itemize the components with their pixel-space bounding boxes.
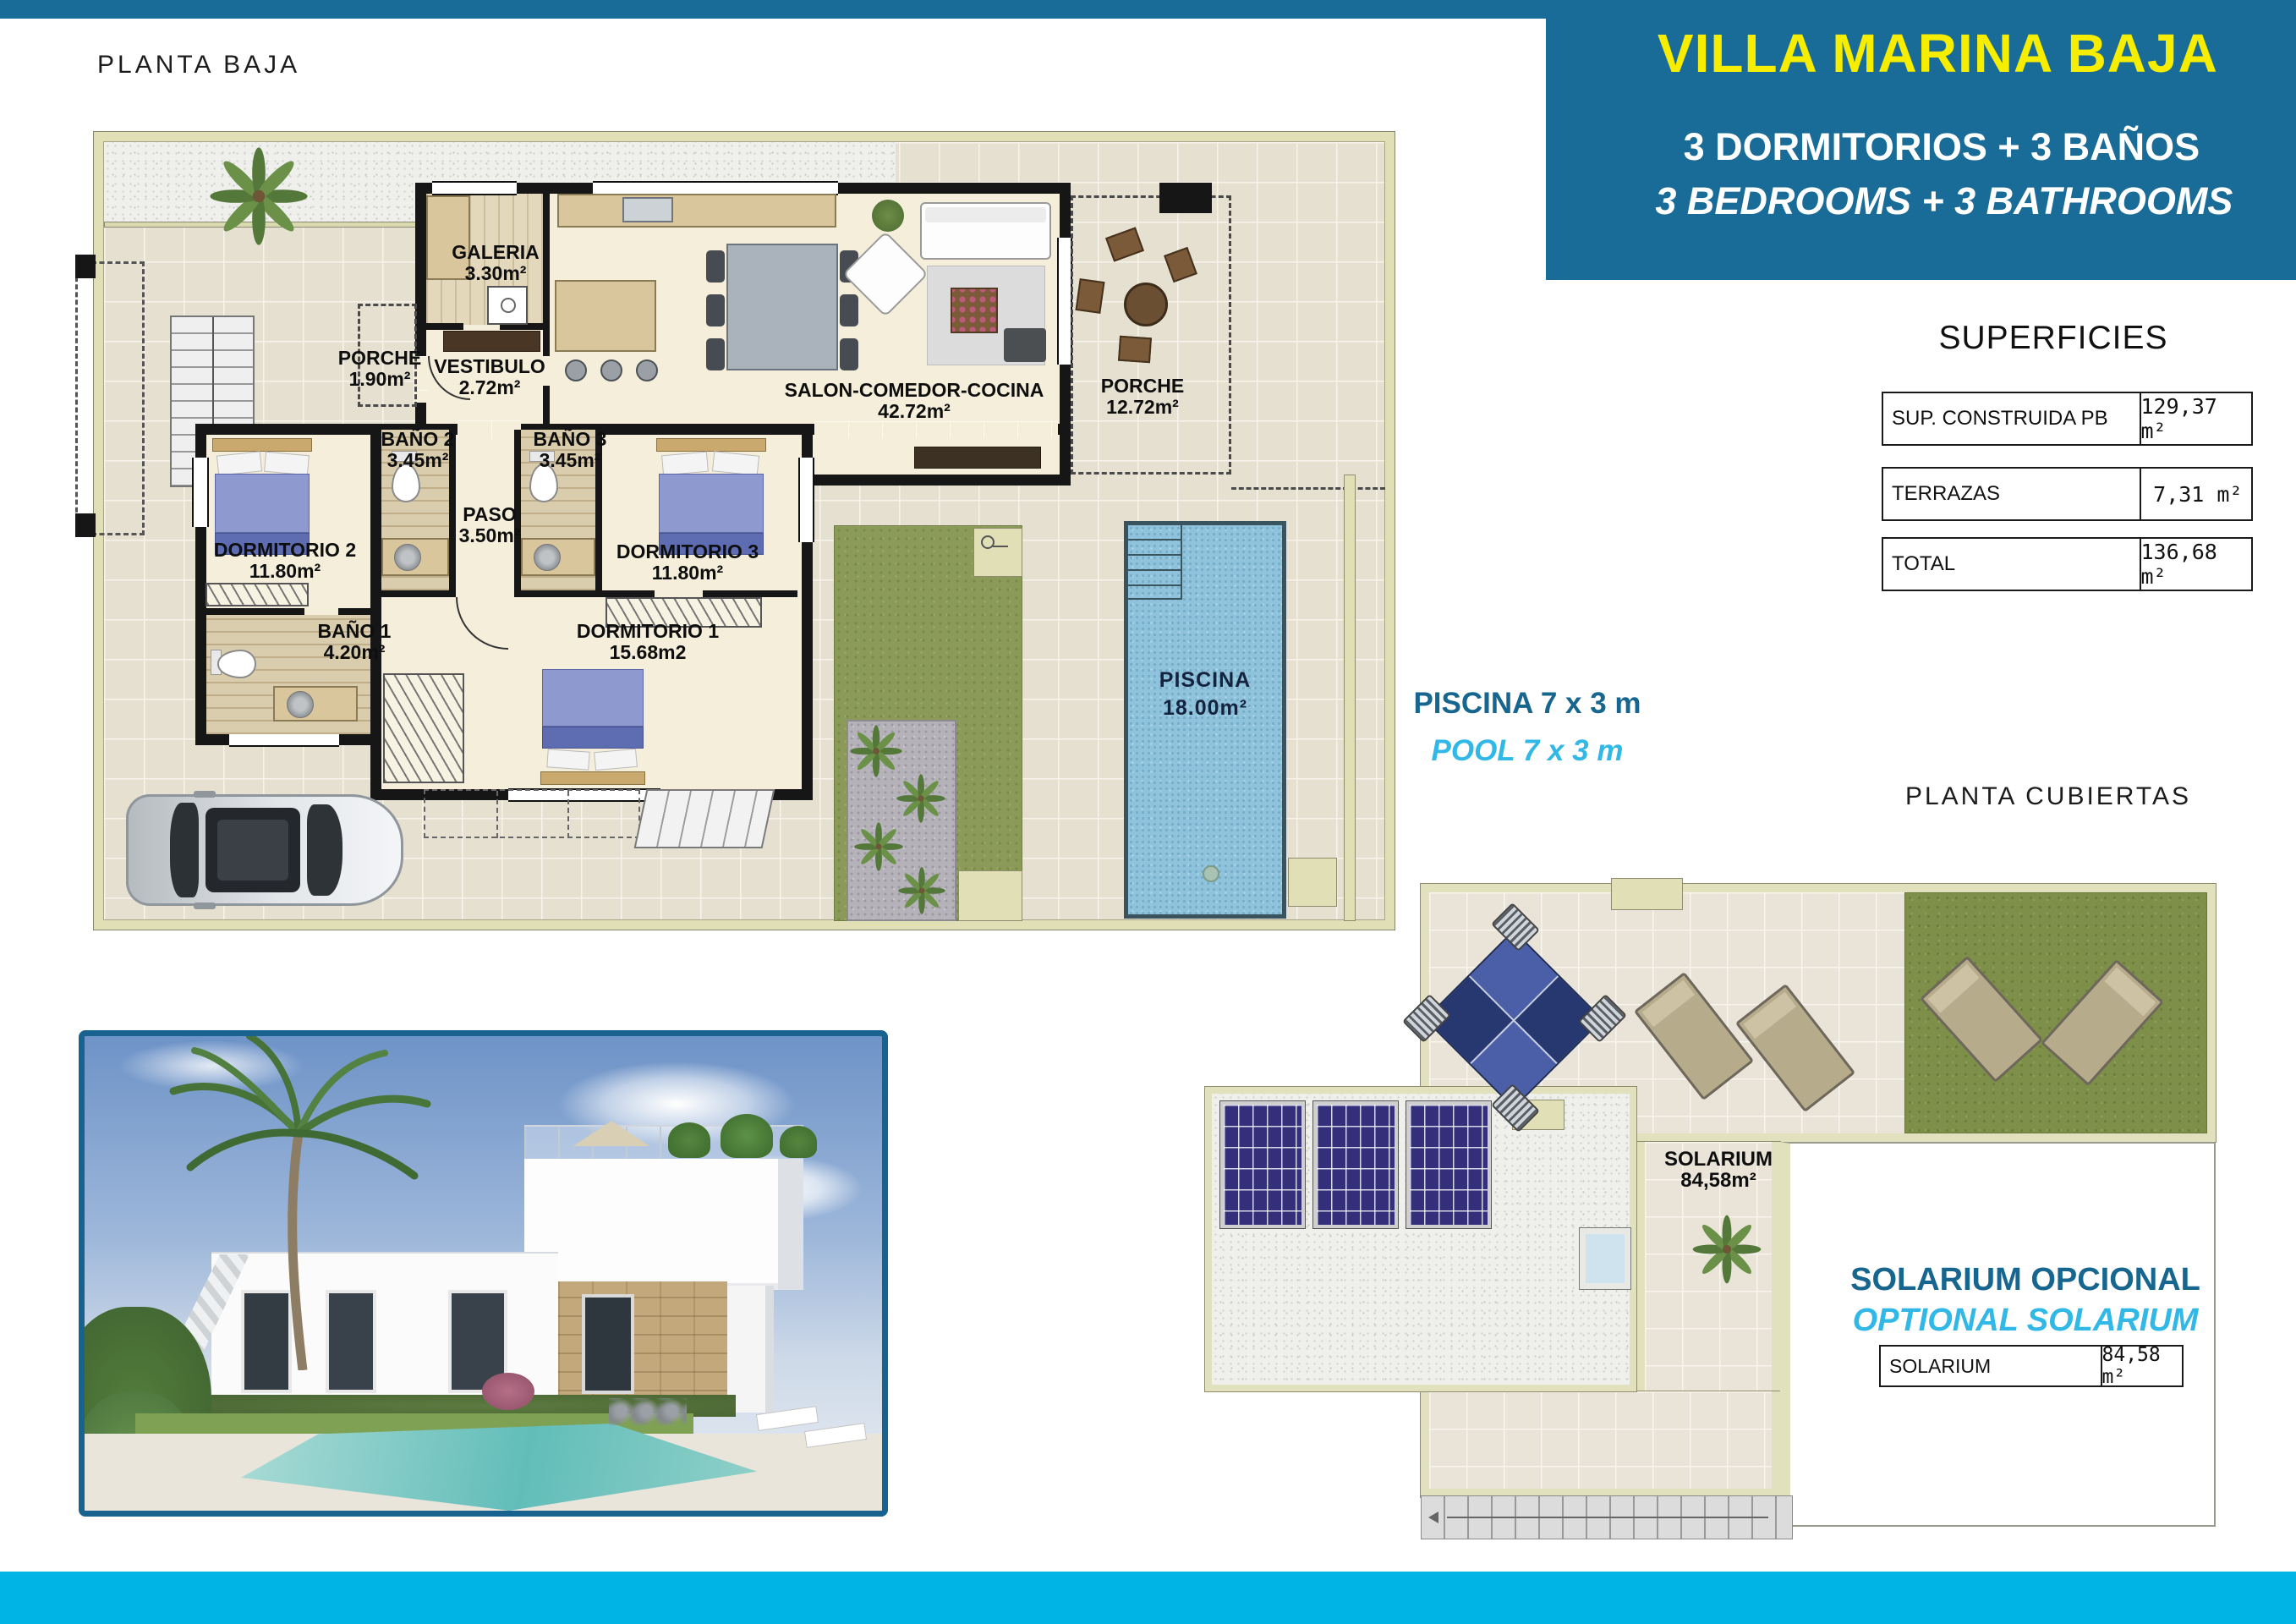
solarium-table-value: 84,58 m² <box>2101 1345 2184 1387</box>
solarium-room-label: SOLARIUM84,58m² <box>1664 1149 1773 1191</box>
superficies-row-value: 7,31 m² <box>2140 467 2253 521</box>
villa-window <box>582 1294 634 1394</box>
palm-icon <box>849 724 903 778</box>
pouf <box>1004 328 1046 362</box>
vanity <box>273 686 358 721</box>
stool <box>636 359 658 381</box>
solar-panel <box>1313 1101 1398 1228</box>
entrance-gate <box>75 261 145 535</box>
villa-photo <box>79 1030 888 1517</box>
water-heater <box>487 286 528 325</box>
solar-panel <box>1406 1101 1491 1228</box>
tv-unit <box>914 447 1041 469</box>
room-label-dormitorio2: DORMITORIO 211.80m² <box>214 540 356 582</box>
upper-volume <box>524 1159 803 1290</box>
carport-outline <box>424 789 640 838</box>
photo-dining-set <box>609 1398 687 1425</box>
garden-pad <box>1288 858 1337 907</box>
bed <box>542 669 644 727</box>
room-label-porche-2: PORCHE12.72m² <box>1101 376 1184 418</box>
window <box>432 181 517 195</box>
header-subtitle-en: 3 BEDROOMS + 3 BATHROOMS <box>1655 179 2233 223</box>
solarium-note-es: SOLARIUM OPCIONAL <box>1850 1262 2200 1298</box>
solarium-note-en: OPTIONAL SOLARIUM <box>1853 1303 2199 1339</box>
sideboard <box>443 331 540 352</box>
roof-plant <box>780 1126 817 1158</box>
room-label-vestibulo: VESTIBULO2.72m² <box>434 356 545 398</box>
pillar <box>727 1286 774 1413</box>
sofa <box>920 202 1051 260</box>
sink <box>534 544 561 571</box>
dining-chair <box>706 338 725 370</box>
swimming-pool <box>1124 521 1286 919</box>
brochure-page: VILLA MARINA BAJA 3 DORMITORIOS + 3 BAÑO… <box>0 0 2296 1624</box>
floorplan-title: PLANTA BAJA <box>97 51 300 80</box>
superficies-row: SUP. CONSTRUIDA PB 129,37 m² <box>1882 392 2253 446</box>
dining-table <box>726 244 838 370</box>
front-steps <box>634 789 775 848</box>
bottom-bar <box>0 1572 2296 1624</box>
room-label-porche-1: PORCHE1.90m² <box>338 348 421 390</box>
dining-chair <box>840 338 858 370</box>
superficies-row: TOTAL 136,68 m² <box>1882 537 2253 591</box>
palm-icon <box>208 145 310 247</box>
kitchen-island <box>555 280 656 352</box>
pool-note-es: PISCINA 7 x 3 m <box>1413 687 1641 721</box>
header-subtitle-es: 3 DORMITORIOS + 3 BAÑOS <box>1684 125 2200 169</box>
gate-post <box>75 255 96 278</box>
garden-utility-pad <box>973 528 1022 577</box>
room-label-galeria: GALERIA3.30m² <box>452 242 540 284</box>
closet <box>205 583 309 606</box>
palm-icon <box>853 821 904 872</box>
solarium-table-row: SOLARIUM 84,58 m² <box>1879 1345 2184 1387</box>
gate-post <box>75 513 96 537</box>
porch-chair <box>1118 336 1152 364</box>
dining-chair <box>706 294 725 326</box>
sink <box>394 544 421 571</box>
toilet <box>217 650 256 678</box>
solar-panel <box>1220 1101 1305 1228</box>
superficies-title: SUPERFICIES <box>1938 320 2167 357</box>
car-top-view <box>126 794 403 906</box>
ground-floor-plan: GALERIA3.30m² PORCHE1.90m² VESTIBULO2.72… <box>93 131 1395 930</box>
pool-steps <box>1128 525 1182 600</box>
window <box>798 458 814 542</box>
roof-vent <box>1611 878 1683 910</box>
roofplan-title: PLANTA CUBIERTAS <box>1905 782 2191 811</box>
pool-ladder <box>1203 865 1219 882</box>
coffee-table <box>951 288 998 333</box>
skylight <box>1580 1228 1630 1289</box>
page-title: VILLA MARINA BAJA <box>1658 22 2218 85</box>
stool <box>600 359 622 381</box>
room-label-bano2: BAÑO 23.45m² <box>381 429 455 471</box>
roof-deck-lower <box>1421 1391 1780 1497</box>
room-label-salon: SALON-COMEDOR-COCINA42.72m² <box>785 380 1044 422</box>
room-label-dormitorio1: DORMITORIO 115.68m2 <box>577 621 719 663</box>
pool-label: PISCINA18.00m² <box>1159 669 1251 720</box>
porch-chair <box>1076 278 1105 314</box>
superficies-row-label: TOTAL <box>1882 537 2141 591</box>
roof-tree <box>1691 1214 1762 1285</box>
roof-plant <box>721 1114 773 1158</box>
bed <box>212 438 312 452</box>
roof-parasol <box>573 1121 649 1146</box>
palm-icon <box>896 773 946 824</box>
room-label-paso: PASO3.50m² <box>459 504 521 546</box>
bed <box>656 438 766 452</box>
superficies-row-value: 136,68 m² <box>2140 537 2253 591</box>
sink <box>287 691 314 718</box>
superficies-row-label: TERRAZAS <box>1882 467 2141 521</box>
palm-tree <box>161 1032 440 1370</box>
header-box: VILLA MARINA BAJA 3 DORMITORIOS + 3 BAÑO… <box>1546 0 2296 280</box>
plant-pot <box>872 200 904 232</box>
kitchen-sink <box>622 197 673 222</box>
dining-chair <box>706 250 725 283</box>
garden-wall <box>1344 475 1356 921</box>
room-label-dormitorio3: DORMITORIO 311.80m² <box>616 541 759 584</box>
dining-chair <box>840 294 858 326</box>
palm-icon <box>897 866 946 915</box>
porch-right-outline <box>1071 195 1231 475</box>
bougainvillea <box>482 1373 534 1410</box>
superficies-row-value: 129,37 m² <box>2140 392 2253 446</box>
room-label-bano1: BAÑO 14.20m² <box>318 621 392 663</box>
window <box>229 732 339 747</box>
garden-pad <box>958 870 1022 921</box>
roof-plant <box>668 1122 710 1158</box>
pool-note-en: POOL 7 x 3 m <box>1432 734 1624 768</box>
window <box>192 458 209 527</box>
room-label-bano3: BAÑO 33.45m² <box>534 429 607 471</box>
closet <box>383 673 464 783</box>
kitchen-counter <box>557 194 836 228</box>
superficies-row: TERRAZAS 7,31 m² <box>1882 467 2253 521</box>
roof-stairs <box>1421 1495 1793 1539</box>
solarium-table-label: SOLARIUM <box>1879 1345 2102 1387</box>
superficies-row-label: SUP. CONSTRUIDA PB <box>1882 392 2141 446</box>
stool <box>565 359 587 381</box>
porch-table <box>1124 283 1168 326</box>
